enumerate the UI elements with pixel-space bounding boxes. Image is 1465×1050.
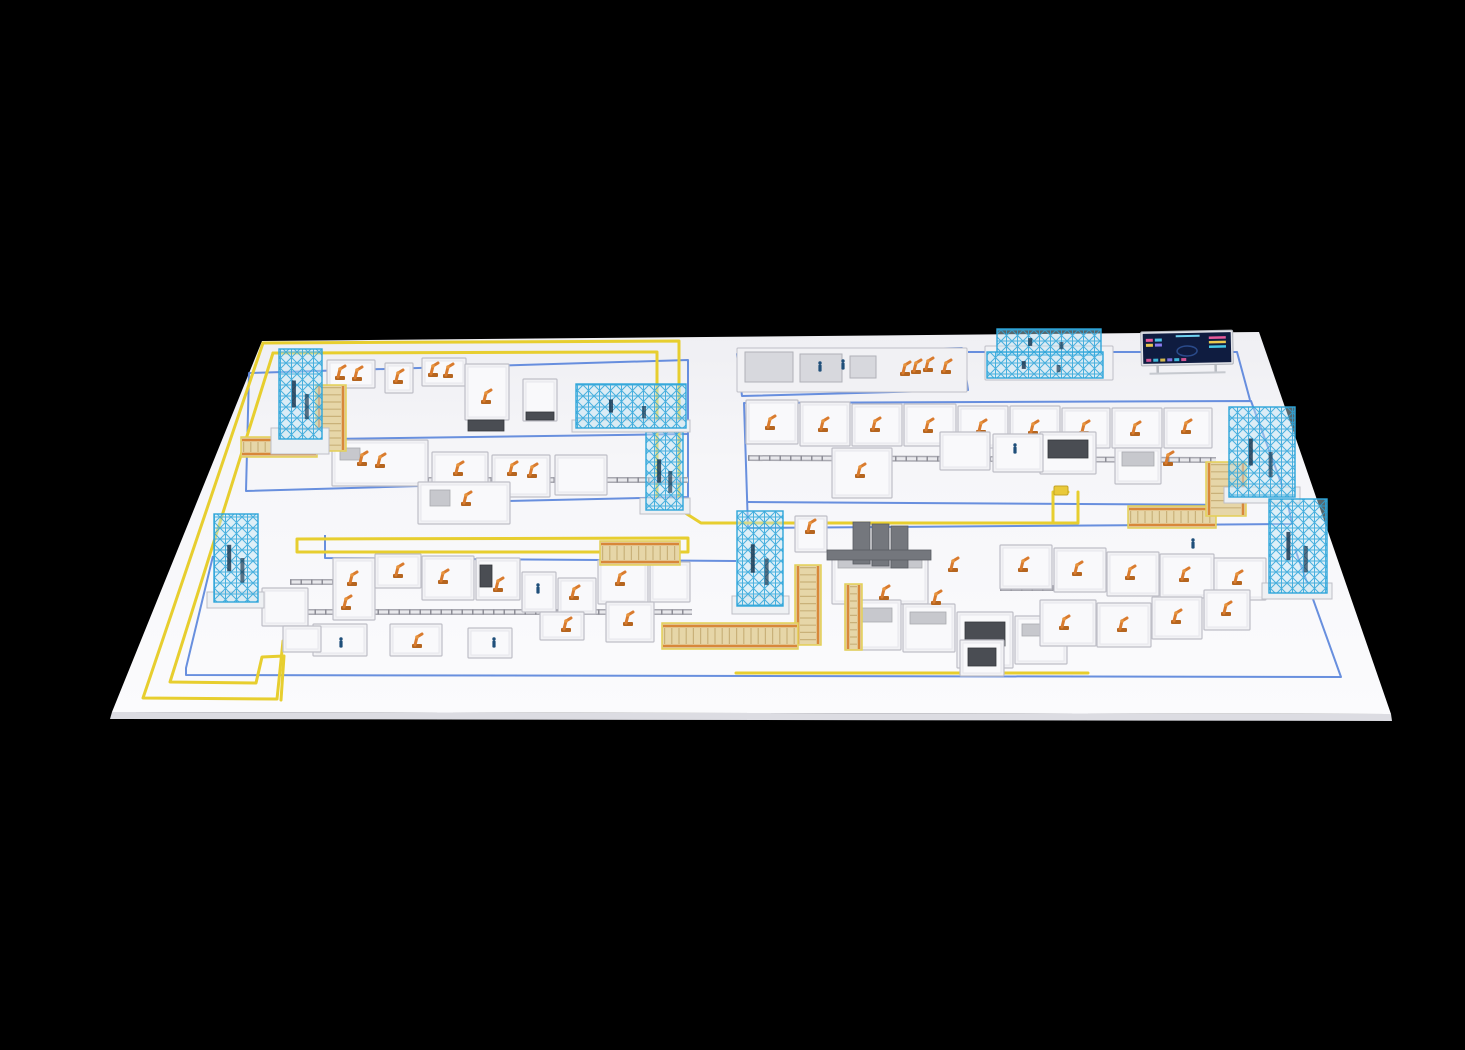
machine-cell[interactable] bbox=[558, 578, 596, 614]
rack-row-top-right-rear[interactable] bbox=[997, 329, 1101, 355]
dashboard-leg bbox=[1214, 364, 1217, 372]
rack-stored-item bbox=[1286, 532, 1290, 560]
elevated-conveyor-e[interactable] bbox=[1128, 506, 1216, 528]
equipment-block bbox=[910, 612, 946, 624]
line-machine[interactable] bbox=[745, 352, 793, 382]
machine-cell[interactable] bbox=[832, 448, 892, 498]
equipment-dark-block bbox=[480, 565, 492, 587]
dashboard-leg bbox=[1156, 366, 1159, 374]
rack-tower-mid-left[interactable] bbox=[640, 432, 690, 514]
machine-cell[interactable] bbox=[746, 400, 798, 444]
dashboard-widget-chip bbox=[1155, 344, 1162, 347]
rack-tower-right-upper[interactable] bbox=[1224, 407, 1300, 503]
machine-cell[interactable] bbox=[327, 360, 375, 388]
dashboard-status-tile bbox=[1160, 358, 1165, 361]
rack-tower-center[interactable] bbox=[732, 511, 789, 614]
machine-cell[interactable] bbox=[375, 554, 421, 588]
dashboard-status-tile bbox=[1146, 359, 1151, 362]
rack-stored-item bbox=[642, 406, 646, 418]
machine-cell[interactable] bbox=[522, 572, 556, 612]
machine-cell[interactable] bbox=[1000, 545, 1052, 589]
worker-figure bbox=[339, 637, 342, 647]
rack-stored-item bbox=[1057, 365, 1061, 372]
machine-cell[interactable] bbox=[262, 588, 308, 626]
machine-cell[interactable] bbox=[1115, 448, 1161, 484]
machine-cell[interactable] bbox=[540, 612, 584, 640]
elevated-conveyor-d[interactable] bbox=[845, 584, 862, 650]
machine-cell[interactable] bbox=[1112, 408, 1162, 448]
rack-stored-item bbox=[657, 459, 661, 482]
rack-stored-item bbox=[240, 558, 244, 583]
machine-cell[interactable] bbox=[390, 624, 442, 656]
machine-cell[interactable] bbox=[476, 558, 520, 600]
rack-stored-item bbox=[1304, 546, 1308, 572]
machine-cell[interactable] bbox=[650, 562, 690, 602]
dashboard-status-tile bbox=[1167, 358, 1172, 361]
machine-cell[interactable] bbox=[555, 455, 607, 495]
machine-cell[interactable] bbox=[940, 432, 990, 470]
rack-row-upper-left[interactable] bbox=[572, 384, 690, 432]
dashboard-bar-widget bbox=[1209, 336, 1226, 339]
machine-cell[interactable] bbox=[800, 402, 850, 446]
equipment-block bbox=[430, 490, 450, 506]
machine-cell[interactable] bbox=[606, 602, 654, 642]
machine-cell[interactable] bbox=[852, 404, 902, 446]
rack-stored-item bbox=[305, 394, 309, 419]
rack-row-top-right-front[interactable] bbox=[987, 352, 1103, 378]
control-cabinet[interactable] bbox=[827, 550, 931, 560]
rack-stored-item bbox=[1249, 439, 1253, 466]
machine-cell[interactable] bbox=[283, 626, 321, 652]
worker-figure bbox=[818, 361, 821, 371]
dashboard-bar-widget bbox=[1209, 341, 1226, 344]
machine-cell[interactable] bbox=[1164, 408, 1212, 448]
machine-cell[interactable] bbox=[1152, 597, 1202, 639]
rack-stored-item bbox=[227, 545, 231, 571]
rack-stored-item bbox=[1028, 338, 1032, 346]
machine-cell[interactable] bbox=[960, 640, 1004, 676]
rack-tower-lower-right[interactable] bbox=[1262, 499, 1332, 599]
elevated-conveyor-c-horizontal[interactable] bbox=[662, 623, 798, 649]
machine-cell[interactable] bbox=[1097, 603, 1151, 647]
machine-cell[interactable] bbox=[465, 364, 509, 431]
dashboard-bar-widget bbox=[1209, 345, 1226, 348]
machine-cell[interactable] bbox=[1204, 590, 1250, 630]
machine-cell[interactable] bbox=[1040, 600, 1096, 646]
machine-cell[interactable] bbox=[422, 556, 474, 600]
equipment-dark-block bbox=[468, 420, 504, 431]
dashboard-status-tile bbox=[1174, 358, 1179, 361]
equipment-dark-block bbox=[526, 412, 554, 420]
machine-cell[interactable] bbox=[385, 363, 413, 393]
dashboard-widget-chip bbox=[1146, 339, 1153, 342]
worker-figure bbox=[536, 583, 539, 593]
machine-cell[interactable] bbox=[333, 558, 375, 620]
worker-figure bbox=[841, 359, 844, 369]
dashboard-widget-chip bbox=[1146, 344, 1153, 347]
worker-figure bbox=[1013, 443, 1016, 453]
machine-cell[interactable] bbox=[1107, 552, 1159, 596]
rack-stored-item bbox=[1059, 342, 1063, 349]
machine-cell[interactable] bbox=[598, 560, 648, 604]
machine-cell[interactable] bbox=[422, 358, 466, 386]
rack-tower-upper-left[interactable] bbox=[271, 349, 329, 454]
worker-figure bbox=[1191, 538, 1194, 548]
rack-stored-item bbox=[668, 471, 672, 493]
dashboard-widget-chip bbox=[1155, 339, 1162, 342]
elevated-conveyor-c-vertical[interactable] bbox=[795, 565, 821, 645]
equipment-dark-block bbox=[968, 648, 996, 666]
line-machine[interactable] bbox=[850, 356, 876, 378]
machine-cell[interactable] bbox=[1054, 548, 1106, 592]
machine-cell[interactable] bbox=[993, 434, 1043, 472]
rack-stored-item bbox=[765, 559, 769, 586]
machine-cell[interactable] bbox=[418, 482, 510, 524]
worker-figure bbox=[492, 637, 495, 647]
rack-stored-item bbox=[292, 381, 296, 408]
machine-cell[interactable] bbox=[1040, 432, 1096, 474]
rack-tower-lower-left[interactable] bbox=[207, 514, 264, 608]
rack-stored-item bbox=[1022, 361, 1026, 369]
control-cabinet[interactable] bbox=[891, 526, 908, 568]
machine-cell[interactable] bbox=[903, 604, 955, 652]
equipment-dark-block bbox=[1048, 440, 1088, 458]
dashboard-status-tile bbox=[1181, 358, 1186, 361]
factory-scene-svg bbox=[0, 0, 1465, 1050]
elevated-conveyor-b[interactable] bbox=[600, 541, 680, 565]
rack-stored-item bbox=[751, 544, 755, 573]
equipment-block bbox=[1122, 452, 1154, 466]
dashboard-status-tile bbox=[1153, 359, 1158, 362]
rack-stored-item bbox=[609, 399, 613, 412]
viewport-3d-factory[interactable] bbox=[0, 0, 1465, 1050]
machine-cell[interactable] bbox=[795, 516, 827, 552]
rack-stored-item bbox=[1269, 452, 1273, 477]
agv-cart[interactable] bbox=[1054, 486, 1068, 495]
machine-cell[interactable] bbox=[523, 379, 557, 421]
machine-cell[interactable] bbox=[468, 628, 512, 658]
